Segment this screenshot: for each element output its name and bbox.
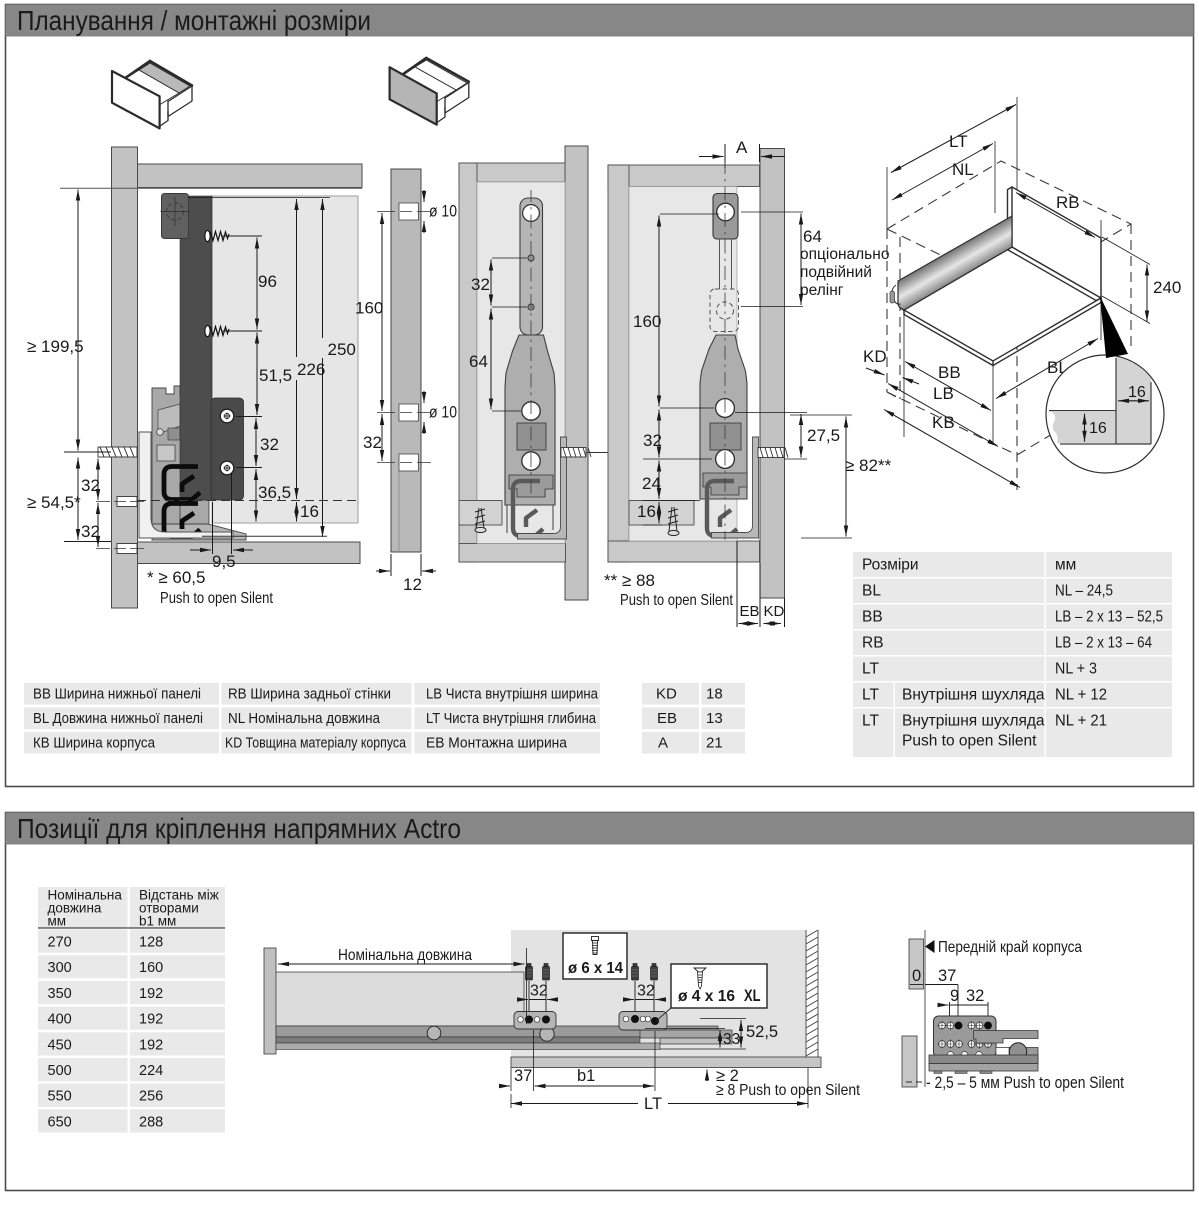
svg-text:160: 160 — [633, 312, 661, 331]
svg-text:32: 32 — [643, 431, 662, 450]
svg-text:450: 450 — [48, 1037, 72, 1053]
svg-text:КВ Ширина корпуса: КВ Ширина корпуса — [33, 734, 156, 751]
svg-text:37: 37 — [514, 1067, 532, 1085]
svg-text:NL Номінальна довжина: NL Номінальна довжина — [228, 710, 381, 727]
svg-text:A: A — [658, 734, 668, 751]
svg-text:224: 224 — [139, 1063, 163, 1079]
svg-text:192: 192 — [139, 986, 163, 1002]
svg-text:350: 350 — [48, 986, 72, 1002]
svg-text:BL: BL — [862, 583, 881, 600]
svg-text:XL: XL — [744, 987, 761, 1005]
svg-text:650: 650 — [48, 1114, 72, 1130]
svg-text:KD: KD — [863, 347, 887, 366]
svg-text:Push to open Silent: Push to open Silent — [160, 590, 273, 607]
svg-text:160: 160 — [139, 960, 163, 976]
svg-text:мм: мм — [1055, 557, 1076, 574]
svg-text:Внутрішня шухляда: Внутрішня шухляда — [902, 687, 1045, 704]
svg-text:Push to open Silent: Push to open Silent — [902, 733, 1037, 750]
svg-text:A: A — [736, 138, 748, 157]
svg-text:240: 240 — [1153, 278, 1181, 297]
svg-text:18: 18 — [706, 685, 723, 702]
svg-text:250: 250 — [328, 340, 356, 359]
svg-text:≥ 54,5*: ≥ 54,5* — [27, 493, 81, 512]
svg-text:Push to open Silent: Push to open Silent — [620, 592, 733, 609]
svg-text:Внутрішня шухляда: Внутрішня шухляда — [902, 713, 1045, 730]
svg-text:b1: b1 — [577, 1067, 595, 1085]
svg-text:270: 270 — [48, 935, 72, 951]
svg-text:≥ 199,5: ≥ 199,5 — [27, 337, 84, 356]
svg-text:96: 96 — [258, 272, 277, 291]
svg-text:ø 10: ø 10 — [429, 404, 457, 422]
svg-text:подвійний: подвійний — [800, 264, 872, 281]
svg-text:32: 32 — [363, 433, 382, 452]
svg-text:300: 300 — [48, 960, 72, 976]
svg-text:Позиції для кріплення напрямни: Позиції для кріплення напрямних Actro — [17, 813, 461, 844]
svg-text:RB: RB — [862, 635, 884, 652]
svg-text:256: 256 — [139, 1089, 163, 1105]
svg-text:32: 32 — [966, 987, 984, 1005]
svg-text:16: 16 — [1128, 384, 1146, 401]
svg-text:EB: EB — [740, 603, 760, 620]
svg-text:BB: BB — [862, 609, 883, 626]
svg-text:опціонально: опціонально — [800, 246, 889, 263]
svg-text:51,5: 51,5 — [259, 366, 292, 385]
svg-text:500: 500 — [48, 1063, 72, 1079]
svg-text:EB: EB — [657, 710, 677, 727]
svg-text:ø 4 x 16: ø 4 x 16 — [678, 988, 735, 1005]
svg-text:BB Ширина нижньої панелі: BB Ширина нижньої панелі — [33, 685, 201, 702]
svg-text:16: 16 — [300, 502, 319, 521]
svg-text:ø 10: ø 10 — [429, 203, 457, 221]
svg-text:NL + 3: NL + 3 — [1055, 661, 1097, 678]
svg-text:LB – 2 x 13 – 52,5: LB – 2 x 13 – 52,5 — [1055, 609, 1163, 626]
svg-text:* ≥ 60,5: * ≥ 60,5 — [147, 568, 205, 587]
svg-text:192: 192 — [139, 1012, 163, 1028]
svg-text:32: 32 — [530, 983, 548, 1000]
svg-text:21: 21 — [706, 734, 723, 751]
svg-text:64: 64 — [803, 227, 822, 246]
svg-text:NL + 12: NL + 12 — [1055, 687, 1107, 704]
svg-text:KD Товщина матеріалу корпуса: KD Товщина матеріалу корпуса — [225, 734, 407, 751]
svg-text:32: 32 — [260, 435, 279, 454]
svg-text:288: 288 — [139, 1114, 163, 1130]
svg-text:9: 9 — [950, 987, 959, 1005]
svg-text:LB Чиста внутрішня ширина: LB Чиста внутрішня ширина — [426, 685, 599, 702]
svg-text:** ≥ 88: ** ≥ 88 — [604, 571, 655, 590]
svg-text:550: 550 — [48, 1089, 72, 1105]
svg-text:37: 37 — [938, 967, 956, 985]
svg-text:32: 32 — [81, 522, 100, 541]
svg-text:LT: LT — [862, 713, 879, 730]
svg-text:52,5: 52,5 — [746, 1023, 778, 1041]
svg-text:мм: мм — [48, 914, 67, 929]
svg-text:RB Ширина задньої стінки: RB Ширина задньої стінки — [228, 685, 391, 702]
svg-text:LB – 2 x 13 – 64: LB – 2 x 13 – 64 — [1055, 635, 1152, 652]
svg-text:Номінальна довжина: Номінальна довжина — [338, 947, 472, 964]
svg-text:NL + 21: NL + 21 — [1055, 713, 1107, 730]
svg-text:27,5: 27,5 — [807, 426, 840, 445]
svg-text:Планування / монтажні розміри: Планування / монтажні розміри — [17, 5, 371, 36]
svg-text:- 2,5 – 5 мм Push to open Sile: - 2,5 – 5 мм Push to open Silent — [926, 1074, 1124, 1092]
svg-text:релінг: релінг — [800, 282, 844, 299]
svg-text:NL – 24,5: NL – 24,5 — [1055, 583, 1113, 600]
svg-text:9,5: 9,5 — [212, 552, 236, 571]
svg-text:13: 13 — [706, 710, 723, 727]
svg-text:16: 16 — [637, 502, 656, 521]
svg-text:32: 32 — [81, 476, 100, 495]
svg-text:LB: LB — [933, 384, 954, 403]
svg-text:226: 226 — [297, 360, 325, 379]
svg-text:KD: KD — [764, 603, 785, 620]
svg-text:36,5: 36,5 — [258, 483, 291, 502]
svg-text:RB: RB — [1056, 193, 1080, 212]
svg-text:64: 64 — [469, 352, 488, 371]
svg-text:128: 128 — [139, 935, 163, 951]
svg-text:LT: LT — [644, 1095, 662, 1113]
svg-text:Розміри: Розміри — [862, 557, 919, 574]
svg-text:LT: LT — [862, 661, 879, 678]
svg-text:KD: KD — [656, 685, 677, 702]
svg-text:24: 24 — [642, 474, 661, 493]
svg-text:400: 400 — [48, 1012, 72, 1028]
svg-text:Передній край корпуса: Передній край корпуса — [938, 939, 1082, 956]
svg-text:EB Монтажна ширина: EB Монтажна ширина — [426, 734, 568, 751]
svg-text:NL: NL — [952, 160, 974, 179]
svg-text:KB: KB — [932, 413, 955, 432]
svg-text:LT: LT — [862, 687, 879, 704]
svg-text:BL Довжина нижньої панелі: BL Довжина нижньої панелі — [33, 710, 203, 727]
svg-text:ø 6 x 14: ø 6 x 14 — [568, 960, 623, 977]
svg-text:32: 32 — [637, 983, 655, 1000]
svg-text:LT Чиста внутрішня глибина: LT Чиста внутрішня глибина — [426, 710, 597, 727]
svg-text:≥ 8 Push to open Silent: ≥ 8 Push to open Silent — [716, 1082, 860, 1099]
svg-text:0: 0 — [912, 967, 921, 985]
svg-text:32: 32 — [471, 275, 490, 294]
svg-text:12: 12 — [403, 575, 422, 594]
svg-text:BB: BB — [938, 363, 961, 382]
svg-text:192: 192 — [139, 1037, 163, 1053]
svg-text:160: 160 — [355, 299, 383, 318]
svg-text:33: 33 — [723, 1031, 740, 1048]
svg-text:16: 16 — [1089, 420, 1107, 437]
svg-text:b1 мм: b1 мм — [139, 914, 176, 929]
svg-text:LT: LT — [949, 132, 968, 151]
svg-text:≥ 82**: ≥ 82** — [845, 456, 892, 475]
